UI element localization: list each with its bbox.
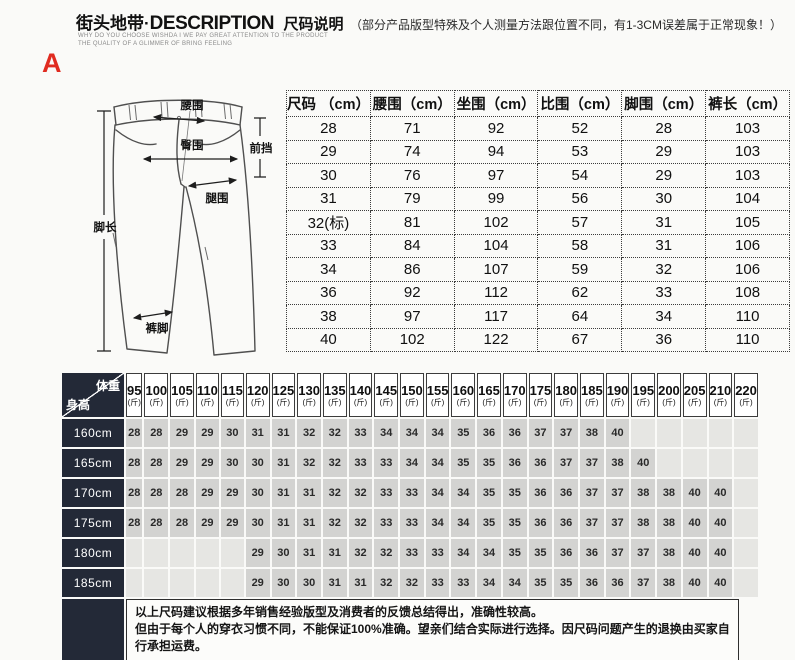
fit-size-cell: 36 (554, 509, 578, 537)
size-table-cell: 99 (454, 187, 538, 211)
size-table-cell: 32(标) (287, 211, 371, 235)
fit-size-cell: 31 (349, 569, 373, 597)
fit-size-cell: 32 (323, 419, 347, 447)
fit-size-cell (734, 419, 758, 447)
fit-size-cell: 30 (246, 509, 270, 537)
size-table-cell: 102 (370, 328, 454, 352)
size-table-row: 2974945329103 (287, 140, 790, 164)
size-table-cell: 106 (706, 234, 790, 258)
size-table-cell: 107 (454, 258, 538, 282)
corner-weight-label: 体重 (96, 377, 120, 394)
weight-header-cell: 220(斤) (734, 373, 758, 417)
fit-size-cell: 36 (477, 419, 501, 447)
fit-size-cell: 31 (297, 539, 321, 567)
fit-size-cell: 37 (580, 509, 604, 537)
fit-size-cell: 40 (709, 509, 733, 537)
fit-size-cell: 31 (272, 449, 296, 477)
weight-header-cell: 165(斤) (477, 373, 501, 417)
fit-size-cell: 29 (221, 509, 244, 537)
fit-size-cell: 33 (349, 419, 373, 447)
weight-value: 135 (324, 384, 346, 398)
weight-unit: (斤) (559, 398, 572, 407)
fit-size-cell (683, 449, 707, 477)
size-table-body: 2871925228103297494532910330769754291033… (287, 117, 790, 352)
size-table-row: 33841045831106 (287, 234, 790, 258)
weight-value: 160 (452, 384, 474, 398)
fit-size-cell: 29 (196, 449, 219, 477)
weight-value: 205 (684, 384, 706, 398)
fit-size-cell: 35 (529, 539, 553, 567)
size-table-cell: 106 (706, 258, 790, 282)
weight-header-cell: 120(斤) (246, 373, 270, 417)
weight-header-cell: 140(斤) (349, 373, 373, 417)
size-table-cell: 94 (454, 140, 538, 164)
fit-size-cell: 32 (323, 449, 347, 477)
fit-size-cell: 35 (477, 509, 501, 537)
size-table-cell: 92 (370, 281, 454, 305)
fit-size-cell: 28 (144, 479, 168, 507)
fit-size-cell: 32 (349, 509, 373, 537)
thigh-label: 腿围 (206, 192, 229, 205)
fit-size-cell (126, 539, 142, 567)
weight-unit: (斤) (150, 398, 163, 407)
fit-size-cell: 34 (451, 479, 475, 507)
size-table-cell: 33 (287, 234, 371, 258)
notes-box: 以上尺码建议根据多年销售经验版型及消费者的反馈总结得出，准确性较高。 但由于每个… (126, 599, 739, 660)
size-table-cell: 31 (287, 187, 371, 211)
fit-size-cell: 40 (631, 449, 655, 477)
fit-size-cell: 33 (426, 539, 450, 567)
weight-value: 95 (127, 384, 141, 398)
size-table-row: 2871925228103 (287, 117, 790, 141)
weight-unit: (斤) (405, 398, 418, 407)
size-table-cell: 64 (538, 305, 622, 329)
weight-unit: (斤) (128, 398, 141, 407)
fit-size-cell: 36 (606, 569, 630, 597)
fit-size-cell: 31 (272, 479, 296, 507)
fit-size-cell: 32 (374, 569, 398, 597)
weight-header-cell: 150(斤) (400, 373, 424, 417)
fit-size-cell: 34 (477, 569, 501, 597)
fit-size-cell: 37 (606, 479, 630, 507)
fit-size-cell: 30 (221, 419, 244, 447)
weight-unit: (斤) (175, 398, 188, 407)
size-table-cell: 102 (454, 211, 538, 235)
fit-size-cell: 31 (272, 419, 296, 447)
hip-label: 臀围 (181, 139, 204, 152)
size-table-row: 32(标)811025731105 (287, 211, 790, 235)
weight-header-cell: 185(斤) (580, 373, 604, 417)
size-table-cell: 54 (538, 164, 622, 188)
weight-value: 185 (581, 384, 603, 398)
fit-size-cell: 31 (323, 539, 347, 567)
height-header-cell: 180cm (62, 539, 124, 567)
fit-size-cell: 35 (503, 479, 527, 507)
weight-unit: (斤) (380, 398, 393, 407)
size-table-cell: 31 (622, 234, 706, 258)
size-table-row: 38971176434110 (287, 305, 790, 329)
fit-size-cell: 32 (349, 479, 373, 507)
weight-value: 165 (478, 384, 500, 398)
weight-header-cell: 200(斤) (657, 373, 681, 417)
size-table-cell: 32 (622, 258, 706, 282)
fit-size-cell: 34 (400, 419, 424, 447)
size-table-cell: 103 (706, 140, 790, 164)
size-table-cell: 104 (706, 187, 790, 211)
fit-size-cell: 40 (683, 479, 707, 507)
size-table-cell: 57 (538, 211, 622, 235)
fit-size-cell: 36 (554, 479, 578, 507)
fit-size-cell (196, 569, 219, 597)
fit-size-cell: 29 (196, 509, 219, 537)
fit-size-cell: 30 (272, 569, 296, 597)
size-col-header: 裤长（cm） (706, 91, 790, 117)
size-table-cell: 84 (370, 234, 454, 258)
size-guide-page: 街头地带·DESCRIPTION 尺码说明 （部分产品版型特殊及个人测量方法跟位… (0, 0, 795, 660)
fit-size-cell: 32 (323, 509, 347, 537)
weight-unit: (斤) (714, 398, 727, 407)
title-english: DESCRIPTION (150, 13, 274, 34)
size-table-cell: 58 (538, 234, 622, 258)
fit-size-cell: 31 (323, 569, 347, 597)
fit-size-cell: 28 (170, 509, 194, 537)
weight-unit: (斤) (457, 398, 470, 407)
fit-size-cell: 40 (683, 509, 707, 537)
fit-size-cell: 29 (170, 449, 194, 477)
fit-size-cell: 28 (170, 479, 194, 507)
fit-size-cell: 33 (374, 449, 398, 477)
size-table-cell: 110 (706, 305, 790, 329)
fit-size-cell: 33 (374, 509, 398, 537)
size-table-cell: 105 (706, 211, 790, 235)
fit-size-cell: 38 (631, 509, 655, 537)
notes-left-dark-cell (62, 599, 124, 660)
size-table-cell: 67 (538, 328, 622, 352)
fit-size-cell: 34 (503, 569, 527, 597)
fit-size-cell: 36 (529, 449, 553, 477)
weight-value: 130 (298, 384, 320, 398)
fit-size-cell (709, 449, 733, 477)
waist-label: 腰围 (180, 98, 204, 112)
fit-size-cell (126, 569, 142, 597)
fit-size-cell: 37 (554, 449, 578, 477)
hem-label: 裤脚 (145, 321, 169, 335)
size-table-cell: 34 (622, 305, 706, 329)
weight-unit: (斤) (637, 398, 650, 407)
fit-size-cell: 38 (580, 419, 604, 447)
fit-size-cell (734, 569, 758, 597)
size-table-cell: 36 (287, 281, 371, 305)
fit-size-cell: 28 (126, 419, 142, 447)
fit-size-cell: 36 (580, 539, 604, 567)
size-table-cell: 33 (622, 281, 706, 305)
size-table-cell: 79 (370, 187, 454, 211)
size-table: 尺码 （cm）腰围（cm）坐围（cm）比围（cm）脚围（cm）裤长（cm） 28… (286, 90, 790, 352)
fit-size-cell: 31 (272, 509, 296, 537)
weight-unit: (斤) (431, 398, 444, 407)
fit-size-cell: 36 (554, 539, 578, 567)
corner-height-label: 身高 (66, 396, 90, 413)
fit-size-cell (221, 539, 244, 567)
weight-header-cell: 145(斤) (374, 373, 398, 417)
size-table-cell: 31 (622, 211, 706, 235)
weight-unit: (斤) (611, 398, 624, 407)
weight-value: 200 (658, 384, 680, 398)
weight-unit: (斤) (201, 398, 214, 407)
fit-grid: 体重身高95(斤)100(斤)105(斤)110(斤)115(斤)120(斤)1… (62, 373, 739, 597)
size-table-cell: 56 (538, 187, 622, 211)
fit-size-cell: 37 (580, 449, 604, 477)
pants-diagram-svg: 腰围 臀围 前挡 腿围 脚长 裤脚 (58, 85, 290, 370)
fit-size-cell (734, 539, 758, 567)
fit-size-cell: 36 (529, 479, 553, 507)
weight-header-cell: 115(斤) (221, 373, 244, 417)
fit-size-cell: 35 (477, 479, 501, 507)
size-table-cell: 30 (287, 164, 371, 188)
fit-size-cell: 32 (400, 569, 424, 597)
fit-size-cell: 37 (580, 479, 604, 507)
height-header-cell: 160cm (62, 419, 124, 447)
size-table-cell: 59 (538, 258, 622, 282)
weight-value: 110 (197, 384, 218, 398)
fit-size-cell: 38 (657, 509, 681, 537)
fit-size-cell: 28 (144, 449, 168, 477)
fit-size-cell: 30 (246, 449, 270, 477)
fit-size-cell: 33 (349, 449, 373, 477)
weight-header-cell: 175(斤) (529, 373, 553, 417)
fit-size-cell: 36 (503, 419, 527, 447)
size-table-cell: 29 (622, 164, 706, 188)
weight-header-cell: 170(斤) (503, 373, 527, 417)
size-col-header: 比围（cm） (538, 91, 622, 117)
fit-size-cell: 37 (529, 419, 553, 447)
size-table-cell: 81 (370, 211, 454, 235)
fit-size-cell: 34 (426, 419, 450, 447)
fit-size-cell: 33 (400, 479, 424, 507)
size-table-cell: 117 (454, 305, 538, 329)
size-table-cell: 29 (287, 140, 371, 164)
weight-unit: (斤) (508, 398, 521, 407)
size-table-cell: 92 (454, 117, 538, 141)
fit-size-cell: 37 (631, 539, 655, 567)
fit-table: 体重身高95(斤)100(斤)105(斤)110(斤)115(斤)120(斤)1… (62, 373, 739, 660)
fit-size-cell: 34 (426, 509, 450, 537)
fit-size-cell: 38 (631, 479, 655, 507)
fit-size-cell (170, 569, 194, 597)
size-table-cell: 52 (538, 117, 622, 141)
fit-size-cell: 29 (196, 419, 219, 447)
size-table-cell: 112 (454, 281, 538, 305)
weight-value: 170 (504, 384, 526, 398)
weight-header-cell: 205(斤) (683, 373, 707, 417)
fit-size-cell (144, 539, 168, 567)
fit-size-cell (170, 539, 194, 567)
size-table-row: 3179995630104 (287, 187, 790, 211)
size-table-cell: 103 (706, 164, 790, 188)
size-col-header: 腰围（cm） (370, 91, 454, 117)
fit-size-cell (734, 479, 758, 507)
weight-header-cell: 155(斤) (426, 373, 450, 417)
fit-size-cell: 31 (246, 419, 270, 447)
fit-size-cell: 32 (323, 479, 347, 507)
weight-unit: (斤) (482, 398, 495, 407)
fit-size-cell: 28 (126, 479, 142, 507)
weight-unit: (斤) (328, 398, 341, 407)
weight-header-cell: 180(斤) (554, 373, 578, 417)
fit-size-cell: 30 (297, 569, 321, 597)
fit-size-cell: 34 (451, 539, 475, 567)
notes-line: 但由于每个人的穿衣习惯不同，不能保证100%准确。望亲们结合实际进行选择。因尺码… (135, 621, 730, 655)
banner-subtext: WHY DO YOU CHOOSE WISHDA I WE PAY GREAT … (78, 32, 328, 48)
fit-size-cell: 40 (606, 419, 630, 447)
weight-value: 180 (555, 384, 577, 398)
section-marker-a: A (42, 48, 62, 79)
weight-unit: (斤) (251, 398, 264, 407)
fit-corner-cell: 体重身高 (62, 373, 124, 417)
fit-size-cell: 30 (221, 449, 244, 477)
size-table-row: 34861075932106 (287, 258, 790, 282)
weight-header-cell: 210(斤) (709, 373, 733, 417)
fit-size-cell: 28 (126, 449, 142, 477)
fit-size-cell: 30 (246, 479, 270, 507)
size-col-header: 尺码 （cm） (287, 91, 371, 117)
size-table-cell: 40 (287, 328, 371, 352)
weight-header-cell: 190(斤) (606, 373, 630, 417)
size-table-cell: 97 (370, 305, 454, 329)
fit-size-cell: 33 (400, 509, 424, 537)
fit-size-cell: 35 (529, 569, 553, 597)
fit-size-cell: 32 (374, 539, 398, 567)
fit-size-cell (196, 539, 219, 567)
size-col-header: 脚围（cm） (622, 91, 706, 117)
fit-size-cell: 35 (503, 509, 527, 537)
weight-header-cell: 125(斤) (272, 373, 296, 417)
fit-size-cell: 36 (529, 509, 553, 537)
fit-size-cell: 29 (221, 479, 244, 507)
fit-size-cell: 29 (196, 479, 219, 507)
size-table-cell: 86 (370, 258, 454, 282)
fit-size-cell: 40 (709, 539, 733, 567)
size-table-header-row: 尺码 （cm）腰围（cm）坐围（cm）比围（cm）脚围（cm）裤长（cm） (287, 91, 790, 117)
weight-header-cell: 195(斤) (631, 373, 655, 417)
fit-size-cell: 33 (426, 569, 450, 597)
size-table-cell: 28 (622, 117, 706, 141)
size-col-header: 坐围（cm） (454, 91, 538, 117)
size-table-cell: 53 (538, 140, 622, 164)
size-table-cell: 110 (706, 328, 790, 352)
weight-header-cell: 160(斤) (451, 373, 475, 417)
fit-size-cell: 33 (374, 479, 398, 507)
fit-size-cell: 37 (606, 539, 630, 567)
weight-value: 100 (145, 384, 167, 398)
fit-size-cell: 34 (426, 479, 450, 507)
fit-size-cell (657, 449, 681, 477)
weight-value: 210 (710, 384, 732, 398)
size-table-row: 3076975429103 (287, 164, 790, 188)
size-table-cell: 30 (622, 187, 706, 211)
fit-size-cell: 31 (297, 509, 321, 537)
title-tolerance-note: （部分产品版型特殊及个人测量方法跟位置不同，有1-3CM误差属于正常现象！） (350, 18, 782, 32)
fit-size-cell: 40 (709, 569, 733, 597)
size-table-cell: 36 (622, 328, 706, 352)
fit-size-cell: 34 (374, 419, 398, 447)
fit-size-cell: 28 (144, 509, 168, 537)
height-header-cell: 170cm (62, 479, 124, 507)
weight-value: 190 (607, 384, 629, 398)
fit-size-cell: 35 (451, 449, 475, 477)
fit-size-cell (657, 419, 681, 447)
fit-size-cell: 36 (503, 449, 527, 477)
weight-header-cell: 95(斤) (126, 373, 142, 417)
weight-unit: (斤) (739, 398, 752, 407)
fit-size-cell (683, 419, 707, 447)
fit-size-cell: 29 (246, 569, 270, 597)
fit-size-cell: 34 (426, 449, 450, 477)
size-table-cell: 38 (287, 305, 371, 329)
fit-size-cell: 35 (451, 419, 475, 447)
weight-unit: (斤) (688, 398, 701, 407)
fit-size-cell: 34 (451, 509, 475, 537)
fit-size-cell: 35 (554, 569, 578, 597)
size-table-cell: 122 (454, 328, 538, 352)
fit-size-cell: 34 (400, 449, 424, 477)
size-table-cell: 104 (454, 234, 538, 258)
size-table-cell: 34 (287, 258, 371, 282)
brand-name: 街头地带 (76, 14, 144, 33)
weight-header-cell: 130(斤) (297, 373, 321, 417)
size-table-cell: 71 (370, 117, 454, 141)
weight-header-cell: 135(斤) (323, 373, 347, 417)
weight-value: 195 (632, 384, 654, 398)
fit-size-cell: 29 (170, 419, 194, 447)
fit-size-cell: 34 (477, 539, 501, 567)
fit-size-cell: 31 (297, 479, 321, 507)
fit-size-cell: 30 (272, 539, 296, 567)
fit-size-cell: 35 (477, 449, 501, 477)
fit-size-cell: 32 (297, 419, 321, 447)
fit-size-cell: 38 (657, 479, 681, 507)
fit-size-cell (631, 419, 655, 447)
weight-header-cell: 100(斤) (144, 373, 168, 417)
height-header-cell: 185cm (62, 569, 124, 597)
fit-size-cell: 35 (503, 539, 527, 567)
fit-size-cell: 37 (606, 509, 630, 537)
fit-size-cell: 28 (144, 419, 168, 447)
fit-size-cell (734, 449, 758, 477)
fit-size-cell: 37 (554, 419, 578, 447)
banner-subtext-line1: WHY DO YOU CHOOSE WISHDA I WE PAY GREAT … (78, 32, 328, 40)
weight-unit: (斤) (534, 398, 547, 407)
banner-subtext-line2: THE QUALITY OF A GLIMMER OF BRING FEELIN… (78, 40, 328, 48)
fit-size-cell (144, 569, 168, 597)
weight-value: 150 (401, 384, 423, 398)
notes-line: 以上尺码建议根据多年销售经验版型及消费者的反馈总结得出，准确性较高。 (135, 604, 730, 621)
weight-value: 140 (350, 384, 372, 398)
front-rise-label: 前挡 (250, 141, 273, 155)
weight-unit: (斤) (354, 398, 367, 407)
weight-value: 120 (247, 384, 269, 398)
weight-value: 125 (273, 384, 295, 398)
size-table-row: 401021226736110 (287, 328, 790, 352)
weight-value: 155 (427, 384, 449, 398)
height-header-cell: 165cm (62, 449, 124, 477)
size-table-cell: 29 (622, 140, 706, 164)
fit-size-cell: 38 (657, 539, 681, 567)
size-table-cell: 28 (287, 117, 371, 141)
fit-size-cell: 36 (580, 569, 604, 597)
size-table-row: 36921126233108 (287, 281, 790, 305)
size-table-head: 尺码 （cm）腰围（cm）坐围（cm）比围（cm）脚围（cm）裤长（cm） (287, 91, 790, 117)
